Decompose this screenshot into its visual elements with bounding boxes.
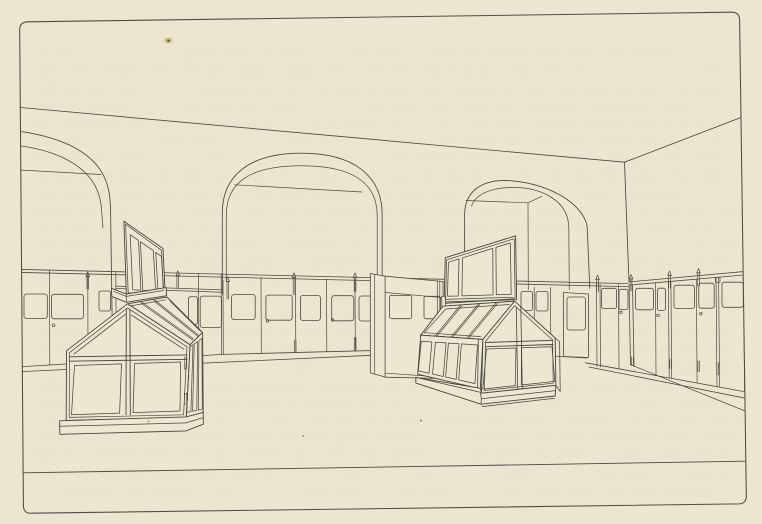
svg-text:formmoreeachalsocasestableglas: formmoreeachalsocasestableglassuponhavem… [35, 186, 679, 200]
svg-text:whichfloorbetweenwhichtablespa: whichfloorbetweenwhichtablespacebetweens… [29, 447, 746, 461]
